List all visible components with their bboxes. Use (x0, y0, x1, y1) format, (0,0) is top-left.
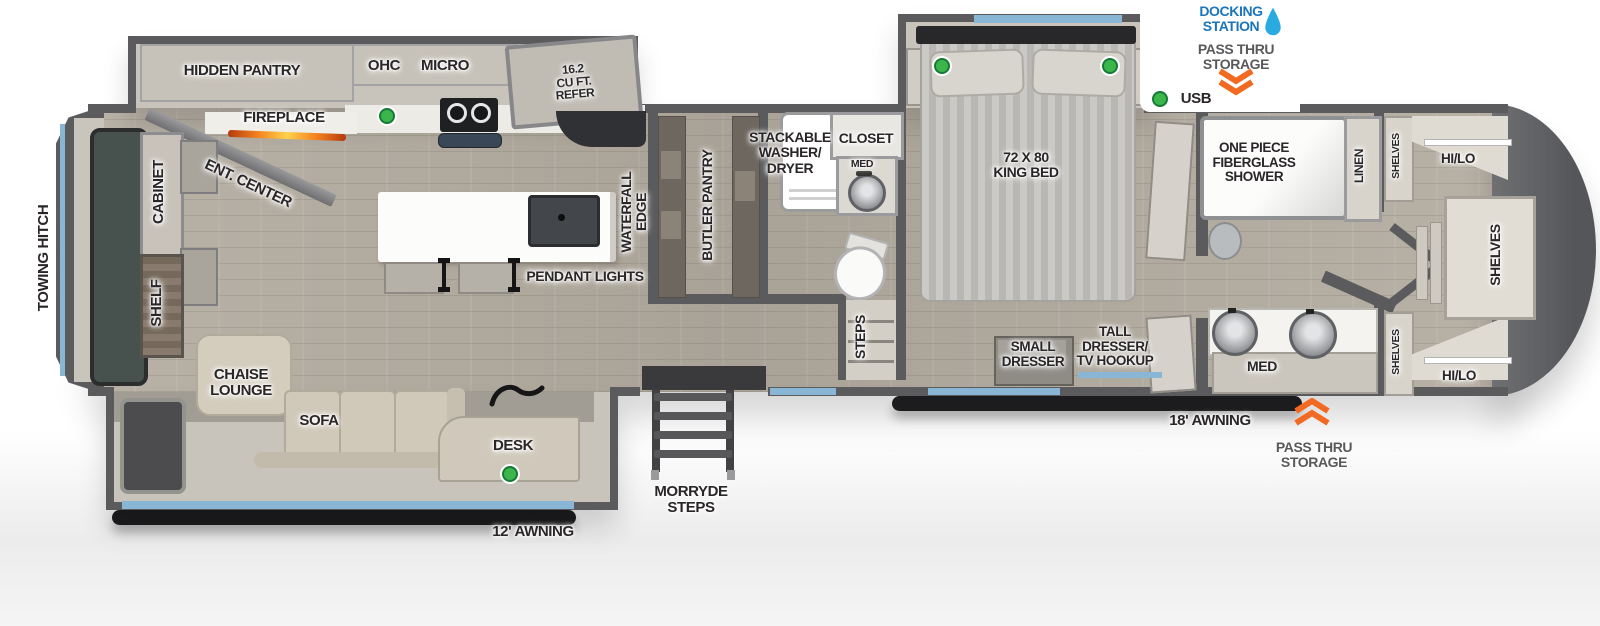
vanity-sink-icon (1289, 311, 1337, 359)
faucet-icon (1228, 308, 1236, 313)
pantry-shelving (658, 116, 686, 298)
pendant-light-icon (438, 258, 450, 292)
hanging-rod-top (1424, 139, 1512, 146)
desk-label: DESK (483, 437, 543, 455)
top-wall-segment (88, 104, 136, 113)
faucet-icon (558, 214, 565, 221)
linen-label: LINEN (1350, 131, 1368, 201)
entry-landing (642, 366, 766, 390)
water-drop-icon (1262, 6, 1284, 38)
burner-icon (447, 103, 467, 123)
tall-dresser-label: TALLDRESSER/TV HOOKUP (1068, 322, 1162, 372)
cooktop-icon (440, 98, 498, 132)
led-indicator-dot (379, 108, 395, 124)
window-strip (928, 388, 1060, 395)
slide-window (120, 398, 186, 494)
bottom-wall-segment (88, 387, 114, 396)
awning-12-label: 12' AWNING (473, 523, 593, 541)
bath-toilet-icon (1208, 222, 1242, 260)
awning-18-bar (892, 396, 1302, 411)
front-cabinet-box (180, 248, 218, 306)
island-bench (458, 262, 514, 294)
usb-label: USB (1174, 90, 1218, 108)
morryde-steps-label: MORRYDESTEPS (641, 483, 741, 517)
fireplace-label: FIREPLACE (234, 109, 334, 127)
usb-indicator-dot (934, 58, 950, 74)
bed-slide-window-strip (974, 15, 1122, 23)
hanging-rod-bottom (1424, 357, 1512, 364)
small-dresser-label: SMALLDRESSER (996, 338, 1070, 372)
steps-wall (838, 294, 846, 380)
pass-thru-arrow-down-icon (1216, 68, 1256, 96)
steps-label: STEPS (852, 302, 870, 372)
front-window-strip (60, 124, 65, 376)
hilo-bottom-label: HI/LO (1425, 367, 1493, 385)
island-sink (528, 195, 600, 247)
desk-chair-icon (486, 380, 548, 408)
headboard (916, 26, 1136, 44)
shower-label: ONE PIECEFIBERGLASSSHOWER (1204, 138, 1304, 188)
med-label: MED (840, 158, 884, 172)
shelves-bottom-label: SHELVES (1389, 314, 1405, 390)
shelf-label: SHELF (148, 268, 166, 338)
led-indicator-dot (502, 466, 518, 482)
step-rung (654, 393, 732, 401)
vanity-sink-icon (1212, 310, 1258, 356)
bottom-wall-segment (610, 387, 640, 396)
shelf-slat (1416, 226, 1428, 300)
hidden-pantry-label: HIDDEN PANTRY (168, 62, 316, 80)
pendant-light-icon (508, 258, 520, 292)
step-rung (654, 450, 732, 458)
stove-grate-icon (438, 133, 502, 148)
step-foot (651, 470, 659, 480)
waterfall-edge-label: WATERFALLEDGE (617, 157, 651, 267)
faucet-icon (1306, 309, 1314, 314)
towing-hitch-label: TOWING HITCH (34, 178, 54, 338)
island-bench (384, 262, 444, 294)
bath-sink-icon (848, 174, 886, 212)
pantry-shelf (661, 211, 681, 239)
refer-label: 16.2CU FT.REFER (553, 61, 595, 103)
pass-thru-bottom-label: PASS THRUSTORAGE (1264, 438, 1364, 472)
king-bed-label: 72 X 80KING BED (976, 148, 1076, 182)
butler-pantry-label: BUTLER PANTRY (699, 125, 717, 285)
floorplan-canvas: TOWING HITCH 16.2CU FT.REFER HIDDEN PANT… (0, 0, 1600, 626)
cabinet-label: CABINET (150, 137, 168, 247)
med-rear-label: MED (1232, 358, 1292, 376)
chaise-lounge-label: CHAISELOUNGE (191, 366, 291, 400)
sofa-label: SOFA (289, 412, 349, 430)
hilo-top-label: HI/LO (1424, 150, 1492, 168)
bedroom-window-strip (1078, 372, 1162, 378)
shelves-main-label: SHELVES (1487, 200, 1505, 310)
awning-18-label: 18' AWNING (1150, 412, 1270, 430)
closet-label: CLOSET (830, 130, 902, 148)
washer-dryer-label: STACKABLEWASHER/DRYER (744, 128, 836, 178)
step-rung (654, 412, 732, 420)
micro-label: MICRO (414, 57, 476, 75)
bath-wall (1196, 318, 1208, 396)
living-slide-window-strip (122, 501, 574, 509)
step-foot (727, 470, 735, 480)
shelves-top-label: SHELVES (1389, 118, 1405, 194)
step-rung (654, 431, 732, 439)
window-strip (770, 388, 836, 395)
burner-icon (471, 103, 491, 123)
shelf-slat (1430, 222, 1442, 304)
usb-indicator-dot (1152, 91, 1168, 107)
pendant-lights-label: PENDANT LIGHTS (520, 268, 650, 286)
usb-indicator-dot (1102, 58, 1118, 74)
pantry-shelf (661, 151, 681, 179)
pass-thru-arrow-up-icon (1292, 398, 1332, 428)
ohc-label: OHC (362, 57, 406, 75)
